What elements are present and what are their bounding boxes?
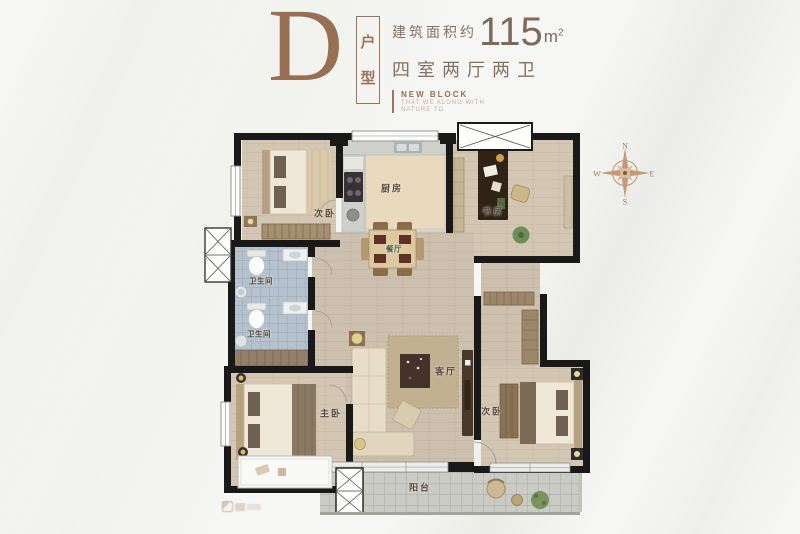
plan-type-char-1: 户 — [360, 35, 375, 50]
area-line: 建筑面积约 115 m2 — [392, 16, 582, 49]
room-label-bedroom-bottom-right: 次卧 — [479, 405, 503, 418]
area-value: 115 — [479, 16, 543, 49]
room-label-bath-bottom: 卫生间 — [245, 329, 271, 340]
plan-info: 建筑面积约 115 m2 四室两厅两卫 NEW BLOCK THAT WE AL… — [392, 16, 582, 113]
block-caption: NEW BLOCK THAT WE ALONG WITH NATURE TO — [392, 90, 582, 113]
rooms-summary: 四室两厅两卫 — [392, 56, 582, 82]
compass-north-label: N — [622, 142, 628, 151]
area-unit: m2 — [544, 27, 564, 49]
room-label-living: 客厅 — [433, 365, 457, 378]
area-unit-exponent: 2 — [558, 27, 564, 38]
compass: N E S W — [592, 134, 658, 210]
plan-type-char-2: 型 — [360, 71, 375, 86]
plan-type-box: 户 型 — [356, 16, 380, 104]
room-label-balcony: 阳台 — [407, 481, 431, 494]
compass-west-label: W — [593, 170, 601, 179]
plan-letter: D — [268, 0, 343, 98]
room-label-study: 书房 — [480, 205, 504, 218]
watermark-logo — [222, 501, 261, 512]
block-subtitle-2: NATURE TO — [401, 107, 582, 113]
room-label-bedroom-top-left: 次卧 — [312, 207, 336, 220]
room-label-bath-top: 卫生间 — [247, 276, 273, 287]
compass-south-label: S — [623, 198, 627, 207]
area-label: 建筑面积约 — [392, 22, 477, 49]
block-subtitle-1: THAT WE ALONG WITH — [401, 100, 582, 106]
room-label-dining: 餐厅 — [384, 244, 402, 255]
plan-header: D 户 型 建筑面积约 115 m2 四室两厅两卫 NEW BLOCK THAT… — [268, 6, 568, 118]
room-label-kitchen: 厨房 — [379, 182, 403, 195]
block-title: NEW BLOCK — [401, 90, 582, 99]
room-label-master-bedroom: 主卧 — [318, 407, 342, 420]
watermark-icon — [222, 501, 233, 512]
compass-east-label: E — [650, 170, 655, 179]
